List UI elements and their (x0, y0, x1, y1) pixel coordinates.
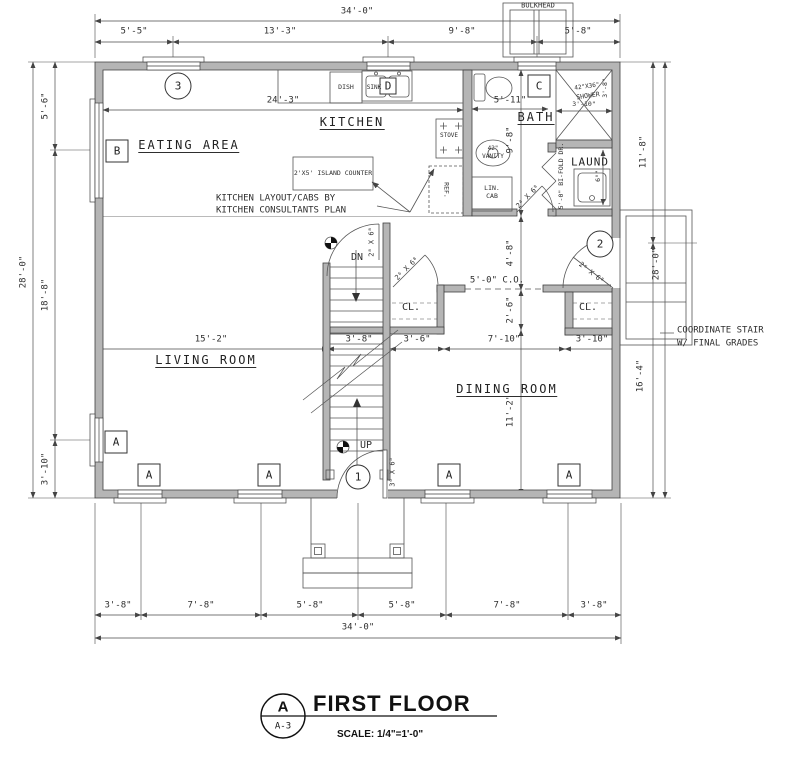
window-mark-a: A (266, 470, 273, 481)
dim-left-3: 3'-10" (42, 453, 51, 486)
door-size-front: 3⁰ X 6⁸ (390, 457, 397, 487)
stair-up-label: UP (360, 441, 372, 451)
dim-top-1: 5'-5" (120, 28, 147, 37)
room-title-dining-room: DINING ROOM (456, 383, 557, 397)
room-title-bath: BATH (518, 111, 555, 125)
stove-label: STOVE (440, 133, 458, 139)
room-title-living-room: LIVING ROOM (155, 354, 256, 368)
smoke-detector-icon (337, 441, 349, 453)
plan-markers (105, 73, 613, 489)
door-mark-3: 3 (175, 81, 182, 92)
room-title-laundry: LAUND (571, 157, 609, 168)
dim-top-overall: 34'-0" (341, 8, 374, 17)
dim-right-2: 16'-4" (637, 360, 646, 393)
dim-mid-1: 15'-2" (195, 336, 228, 345)
bifold-door-label: 5'-0" BI-FOLD DR. (558, 143, 565, 210)
window-mark-a: A (113, 437, 120, 448)
stair-note-line2: W/ FINAL GRADES (677, 340, 758, 349)
window-mark-a: A (146, 470, 153, 481)
window-mark-a: A (446, 470, 453, 481)
dim-bottom-4: 5'-8" (388, 602, 415, 611)
linen-cab-line2: CAB (486, 193, 498, 200)
dim-mid-5: 3'-10" (576, 336, 609, 345)
island-counter-label: 2'X5' ISLAND COUNTER (294, 170, 372, 177)
vanity-label: VANITY (482, 154, 504, 160)
dim-shower-depth: 3'-8" (602, 78, 609, 98)
floor-plan-sheet: BULKHEAD 34'-0" 5'-5" 13'-3" 9'-8" 5'-8"… (0, 0, 802, 768)
sink-label: SINK (367, 85, 381, 91)
dim-shower-width: 3'-10" (572, 101, 595, 108)
closet-right-label: CL. (579, 303, 597, 313)
window-mark-c: C (536, 81, 543, 92)
door-size-stair: 2⁸ X 6⁸ (369, 227, 376, 257)
dim-bottom-1: 3'-8" (104, 602, 131, 611)
dim-right-overall: 28'-0" (653, 248, 662, 281)
window-mark-b: B (114, 146, 121, 157)
dim-kitchen-width: 24'-3" (267, 97, 300, 106)
dim-bath-depth: 9'-8" (507, 126, 516, 153)
sheet-scale: SCALE: 1/4"=1'-0" (337, 730, 423, 740)
vanity-size-label: 42" (488, 146, 499, 152)
room-title-eating-area: EATING AREA (138, 139, 239, 153)
dim-left-overall: 28'-0" (20, 256, 29, 289)
detail-letter: A (278, 700, 289, 715)
door-mark-2: 2 (597, 239, 604, 250)
stair-dn-label: DN (351, 253, 363, 263)
dim-hall-2: 2'-6" (507, 296, 516, 323)
stair-note-line1: COORDINATE STAIR (677, 327, 764, 336)
dim-bottom-2: 7'-8" (187, 602, 214, 611)
dim-dining-depth: 11'-2" (507, 395, 516, 428)
floor-plan-linework (0, 0, 802, 768)
dim-top-4: 5'-8" (564, 28, 591, 37)
dim-left-1: 5'-6" (42, 92, 51, 119)
door-mark-1: 1 (355, 472, 362, 483)
dim-mid-4: 7'-10" (488, 336, 521, 345)
closet-left-label: CL. (402, 303, 420, 313)
dim-hall-1: 4'-8" (507, 239, 516, 266)
dim-bottom-5: 7'-8" (493, 602, 520, 611)
smoke-detector-icon (325, 237, 337, 249)
fixtures (278, 3, 692, 588)
kitchen-note-line2: KITCHEN CONSULTANTS PLAN (216, 207, 346, 216)
dim-bottom-6: 3'-8" (580, 602, 607, 611)
dim-bottom-3: 5'-8" (296, 602, 323, 611)
sheet-number: A-3 (275, 723, 291, 732)
dim-top-2: 13'-3" (264, 28, 297, 37)
window-mark-a: A (566, 470, 573, 481)
dim-left-2: 18'-8" (42, 279, 51, 312)
dim-mid-3: 3'-6" (403, 336, 430, 345)
dim-bottom-overall: 34'-0" (342, 624, 375, 633)
cased-opening-label: 5'-0" C.O. (470, 277, 524, 286)
bulkhead-label: BULKHEAD (521, 3, 555, 10)
room-title-kitchen: KITCHEN (320, 116, 385, 130)
sheet-title: FIRST FLOOR (313, 693, 471, 715)
dim-top-3: 9'-8" (448, 28, 475, 37)
dim-right-1: 11'-8" (640, 136, 649, 169)
linen-cab-line1: LIN. (484, 185, 500, 192)
window-mark-d: D (385, 81, 392, 92)
dim-bath-width: 5'-11" (494, 97, 527, 106)
fridge-label: REF. (443, 182, 450, 198)
dishwasher-label: DISH (338, 84, 354, 91)
dim-laundry-width: 6⁰" (595, 170, 602, 182)
dim-mid-2: 3'-8" (345, 336, 372, 345)
kitchen-note-line1: KITCHEN LAYOUT/CABS BY (216, 195, 335, 204)
